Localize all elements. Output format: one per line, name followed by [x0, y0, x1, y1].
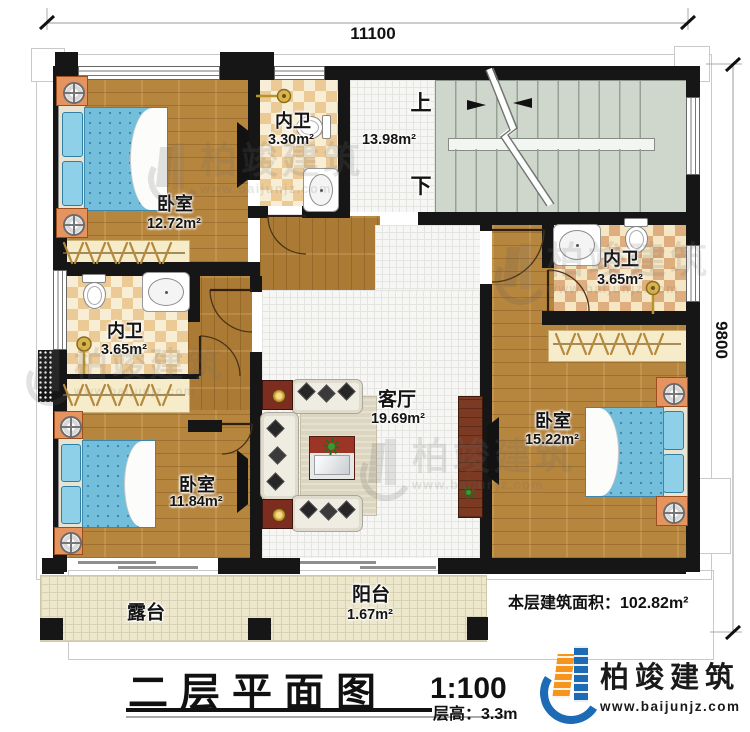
room-label-bedroom-br: 卧室 [535, 407, 571, 433]
summary-label: 本层建筑面积： [508, 595, 620, 612]
room-label-bedroom-tl: 卧室 [157, 190, 193, 216]
room-area-bath-left: 3.65m² [101, 342, 147, 358]
stair-arrow-icon [467, 100, 486, 110]
room-label-balcony: 阳台 [352, 580, 390, 607]
room-area-balcony: 1.67m² [347, 607, 393, 623]
room-area-bath-top: 3.30m² [268, 132, 314, 148]
floor-plan: 11100 9800 卧室 12.72m² 内卫 3.30m² 13.98m² … [0, 0, 750, 732]
dimension-lines [40, 8, 742, 639]
room-area-bedroom-br: 15.22m² [525, 432, 579, 448]
floor-height-label: 层高：3.3m [433, 700, 517, 724]
room-label-terrace: 露台 [127, 598, 165, 625]
summary-value: 102.82m² [620, 595, 689, 612]
room-label-bath-right: 内卫 [603, 245, 639, 271]
stair-down-label: 下 [411, 170, 432, 200]
floor-area-summary: 本层建筑面积：102.82m² [508, 589, 689, 613]
room-label-bath-top: 内卫 [275, 107, 311, 133]
dim-right-label: 9800 [711, 321, 731, 359]
room-area-living: 19.69m² [371, 411, 425, 427]
room-area-bedroom-tl: 12.72m² [147, 216, 201, 232]
company-url: www.baijunjz.com [600, 699, 741, 714]
stair-arrow-icon [513, 98, 532, 108]
room-area-hall: 13.98m² [362, 132, 416, 148]
door-leaf [200, 216, 548, 424]
company-logo-icon [543, 644, 595, 712]
dim-top-label: 11100 [350, 24, 395, 44]
company-name: 柏竣建筑 [600, 664, 741, 693]
company-logo-block: 柏竣建筑 www.baijunjz.com [600, 664, 741, 714]
wardrobe-rod [63, 253, 681, 395]
stair-break-icon [467, 68, 554, 206]
room-area-bedroom-bl: 11.84m² [169, 494, 222, 510]
stair-up-label: 上 [411, 87, 432, 117]
room-area-bath-right: 3.65m² [597, 272, 643, 288]
hanger-icon [64, 243, 663, 405]
room-label-bath-left: 内卫 [107, 317, 143, 343]
dimension-tick [40, 16, 740, 639]
room-label-living: 客厅 [378, 385, 416, 412]
title-underline [126, 708, 432, 712]
